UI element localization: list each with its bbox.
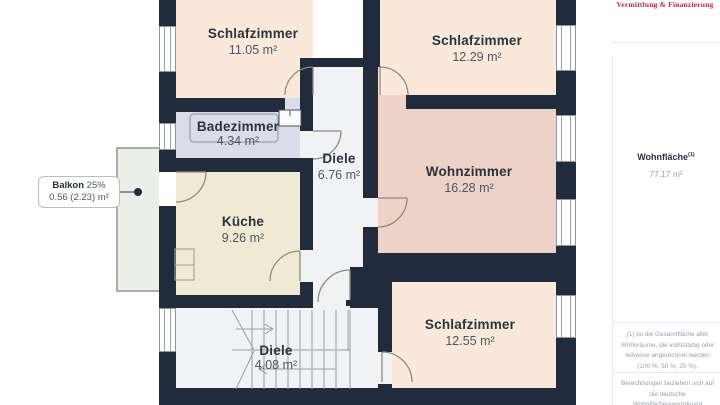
room-name: Schlafzimmer <box>208 26 298 41</box>
room-label-diele-bottom: Diele 4.08 m² <box>255 343 297 372</box>
wall <box>363 67 378 198</box>
living-area-value: 77.17 m² <box>612 169 720 179</box>
wall <box>300 58 380 67</box>
divider <box>612 55 613 405</box>
window <box>556 25 576 71</box>
living-area-label-text: Wohnfläche <box>637 152 688 162</box>
wall <box>350 267 363 308</box>
wall <box>159 158 313 172</box>
room-name: Badezimmer <box>197 119 279 134</box>
room-name: Schlafzimmer <box>432 33 522 48</box>
wall <box>378 282 392 352</box>
divider <box>612 42 720 43</box>
living-area-label: Wohnfläche(1) <box>612 152 720 162</box>
divider <box>612 372 720 373</box>
living-area-summary: Wohnfläche(1) 77.17 m² <box>612 152 720 179</box>
room-label-kueche: Küche 9.26 m² <box>222 214 264 245</box>
wall <box>378 267 576 282</box>
room-area: 12.55 m² <box>425 334 515 348</box>
wall <box>378 384 392 392</box>
balcony-callout-area: 0.56 (2.23) m² <box>41 192 117 204</box>
sidebar: Vermittlung & Finanzierung Wohnfläche(1)… <box>600 0 720 405</box>
room-label-schlafzimmer-top-left: Schlafzimmer 11.05 m² <box>208 26 298 57</box>
footnote-2: Berechnungen beziehen sich auf die deuts… <box>620 379 715 405</box>
footnote-1: (1) Ist die Gesamtfläche aller Wohnräume… <box>620 330 715 372</box>
window <box>556 115 576 162</box>
room-label-wohnzimmer: Wohnzimmer 16.28 m² <box>426 164 513 195</box>
room-label-schlafzimmer-bottom: Schlafzimmer 12.55 m² <box>425 317 515 348</box>
wall <box>300 67 313 131</box>
balcony-area <box>116 147 162 292</box>
window <box>159 26 176 72</box>
wall <box>159 0 176 26</box>
wall <box>159 98 285 112</box>
divider <box>612 322 720 323</box>
wall <box>300 161 313 250</box>
wall <box>159 295 313 308</box>
room-area: 4.34 m² <box>197 134 279 148</box>
floorplan-page: Schlafzimmer 11.05 m² Schlafzimmer 12.29… <box>0 0 720 405</box>
room-name: Diele <box>255 343 297 358</box>
balcony-callout-title: Balkon 25% <box>41 180 117 192</box>
wall <box>159 206 176 308</box>
wall <box>159 352 176 392</box>
room-name: Küche <box>222 214 264 229</box>
wall <box>363 253 576 267</box>
balcony-percent: 25% <box>87 180 106 191</box>
balcony-callout[interactable]: Balkon 25% 0.56 (2.23) m² <box>38 176 120 208</box>
window <box>159 123 176 150</box>
wall <box>406 95 576 109</box>
brand-logo-text: Vermittlung & Finanzierung <box>610 0 720 9</box>
living-area-footnote-ref: (1) <box>688 152 695 158</box>
wall <box>556 162 576 199</box>
room-label-schlafzimmer-top-right: Schlafzimmer 12.29 m² <box>432 33 522 64</box>
room-label-badezimmer: Badezimmer 4.34 m² <box>197 119 279 148</box>
wall <box>363 0 380 67</box>
window <box>556 199 576 246</box>
window <box>159 308 176 352</box>
room-area: 4.08 m² <box>255 358 297 372</box>
room-area: 12.29 m² <box>432 50 522 64</box>
room-label-diele-center: Diele 6.76 m² <box>318 151 360 182</box>
room-area: 9.26 m² <box>222 231 264 245</box>
window <box>556 295 576 338</box>
wall <box>556 0 576 25</box>
room-name: Schlafzimmer <box>425 317 515 332</box>
room-area: 6.76 m² <box>318 168 360 182</box>
room-name: Diele <box>318 151 360 166</box>
wall <box>556 338 576 390</box>
balcony-name: Balkon <box>52 180 84 191</box>
wall <box>363 227 378 308</box>
room-area: 11.05 m² <box>208 43 298 57</box>
balcony-door-opening <box>159 172 176 206</box>
room-area: 16.28 m² <box>426 181 513 195</box>
room-name: Wohnzimmer <box>426 164 513 179</box>
wall <box>159 388 576 405</box>
